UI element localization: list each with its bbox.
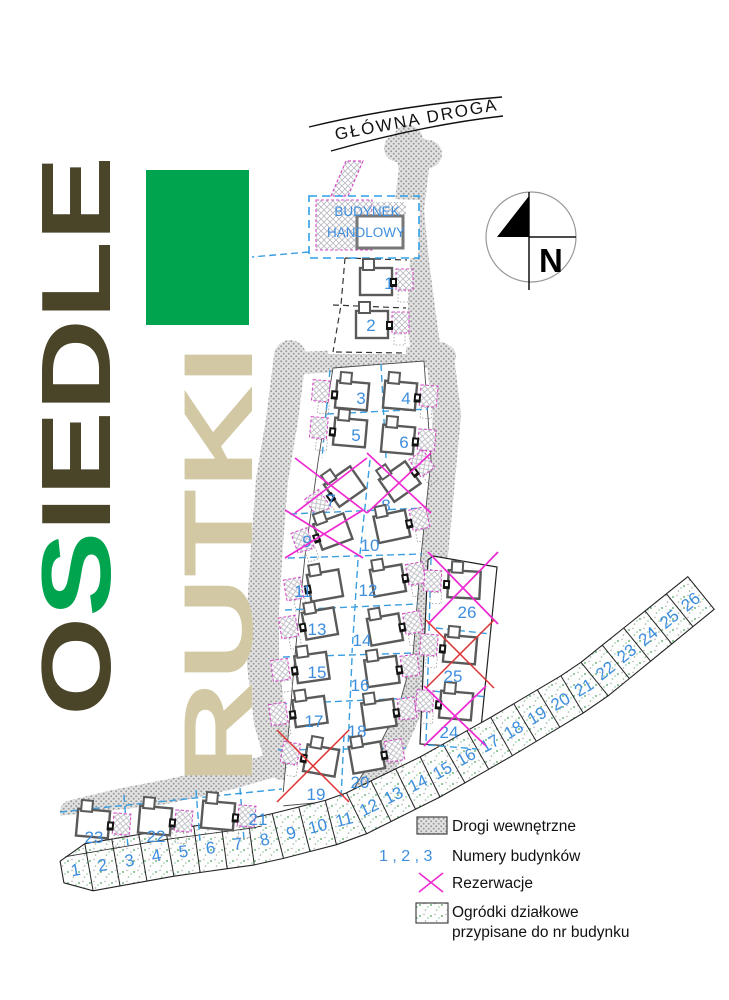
building-number: 4	[401, 389, 410, 408]
annex-hatch	[419, 385, 438, 407]
house-extension	[371, 559, 384, 572]
house-icon	[383, 381, 417, 411]
house-extension	[452, 561, 464, 573]
house-extension	[143, 797, 155, 809]
legend-reservations-label: Rezerwacje	[452, 875, 533, 892]
estate-title-word1: OSIEDLE	[21, 156, 131, 716]
house-extension	[294, 690, 306, 702]
legend-numbers-swatch: 1 , 2 , 3	[379, 848, 432, 865]
estate-title-green-rect	[146, 170, 249, 325]
house-extension	[308, 564, 321, 577]
house-door-inner	[388, 323, 391, 327]
house-door-inner	[395, 710, 399, 714]
annex-hatch	[271, 658, 291, 681]
building-number: 6	[399, 433, 408, 452]
house-extension	[366, 650, 378, 662]
house-door-inner	[234, 815, 237, 819]
building-number: 14	[353, 631, 372, 650]
house-extension	[363, 259, 374, 270]
building-number: 22	[147, 827, 166, 846]
annex-hatch	[424, 570, 442, 592]
building-number: 24	[440, 723, 459, 742]
house-extension	[338, 409, 350, 421]
annex-hatch	[396, 269, 413, 290]
house-door-inner	[333, 392, 336, 396]
house-door-inner	[171, 820, 174, 824]
compass-north-label: N	[539, 242, 563, 279]
legend-gardens-swatch	[416, 903, 448, 923]
house-door-inner	[398, 667, 402, 671]
house-door-inner	[291, 712, 295, 716]
estate-title: OSIEDLE RUTKI	[21, 156, 273, 785]
house-extension	[81, 800, 93, 812]
legend-roads-label: Drogi wewnętrzne	[452, 818, 576, 835]
house-extension	[313, 511, 327, 525]
annex-hatch	[392, 312, 409, 333]
building-number: 13	[308, 620, 327, 639]
house-extension	[386, 416, 398, 428]
commercial-label-line2: HANDLOWY	[327, 225, 405, 240]
building-number: 5	[351, 426, 360, 445]
house-icon	[333, 418, 367, 448]
legend-reservation-x-icon	[419, 873, 443, 892]
building-number: 2	[366, 316, 375, 335]
house-door-inner	[109, 823, 112, 827]
building-number: 16	[351, 676, 370, 695]
house-extension	[388, 372, 400, 384]
building-number: 11	[294, 582, 312, 601]
house-extension	[448, 626, 460, 638]
annex-hatch	[309, 417, 328, 439]
commercial-hatch-parallelogram	[331, 161, 363, 196]
house-extension	[350, 736, 363, 749]
legend-numbers-label: Numery budynków	[452, 848, 581, 865]
legend-gardens-label-line2: przypisane do nr budynku	[452, 924, 630, 941]
house-extension	[363, 693, 375, 705]
building-number: 10	[361, 536, 380, 555]
annex-hatch	[278, 615, 298, 639]
legend-gardens-label-line1: Ogródki działkowe	[452, 904, 579, 921]
house-extension	[303, 602, 316, 615]
house-icon	[443, 635, 477, 665]
annex-hatch	[417, 429, 436, 451]
house-extension	[310, 736, 323, 749]
annex-hatch	[112, 813, 131, 835]
building-number: 21	[249, 810, 268, 829]
house-icon	[381, 425, 415, 455]
house-door-inner	[414, 439, 417, 443]
house-extension	[359, 302, 370, 313]
building-number: 12	[359, 581, 378, 600]
compass: N	[486, 192, 576, 290]
building-number: 17	[305, 712, 324, 731]
building-number: 25	[444, 667, 463, 686]
house-door-inner	[331, 429, 334, 433]
house-extension	[375, 505, 388, 518]
building-number: 15	[308, 663, 327, 682]
building-number: 1	[384, 274, 393, 293]
annex-hatch	[280, 741, 300, 765]
house-door-inner	[293, 668, 297, 672]
house-icon	[201, 801, 235, 831]
house-door-inner	[445, 582, 448, 586]
house-extension	[340, 372, 352, 384]
building-number: 26	[458, 603, 477, 622]
building-number: 20	[351, 773, 370, 792]
estate-title-word2: RUTKI	[163, 345, 273, 785]
house-door-inner	[441, 646, 444, 650]
annex-hatch	[311, 380, 330, 402]
house-door-inner	[416, 395, 419, 399]
site-plan: 1234567891011121314151617181920212223242…	[0, 0, 729, 1000]
house-door-inner	[437, 702, 440, 706]
legend-roads-swatch	[417, 817, 447, 834]
building-number: 3	[356, 389, 365, 408]
legend: Drogi wewnętrzne 1 , 2 , 3 Numery budynk…	[379, 817, 630, 941]
annex-hatch	[419, 634, 438, 656]
building-number: 19	[307, 785, 326, 804]
house-extension	[206, 792, 218, 804]
annex-hatch	[174, 810, 193, 832]
commercial-label-line1: BUDYNEK	[334, 204, 399, 219]
building-number: 7	[326, 491, 335, 510]
house-extension	[368, 608, 381, 621]
annex-dotted-square	[281, 680, 293, 692]
building-number: 23	[85, 828, 104, 847]
house-extension	[296, 646, 308, 658]
